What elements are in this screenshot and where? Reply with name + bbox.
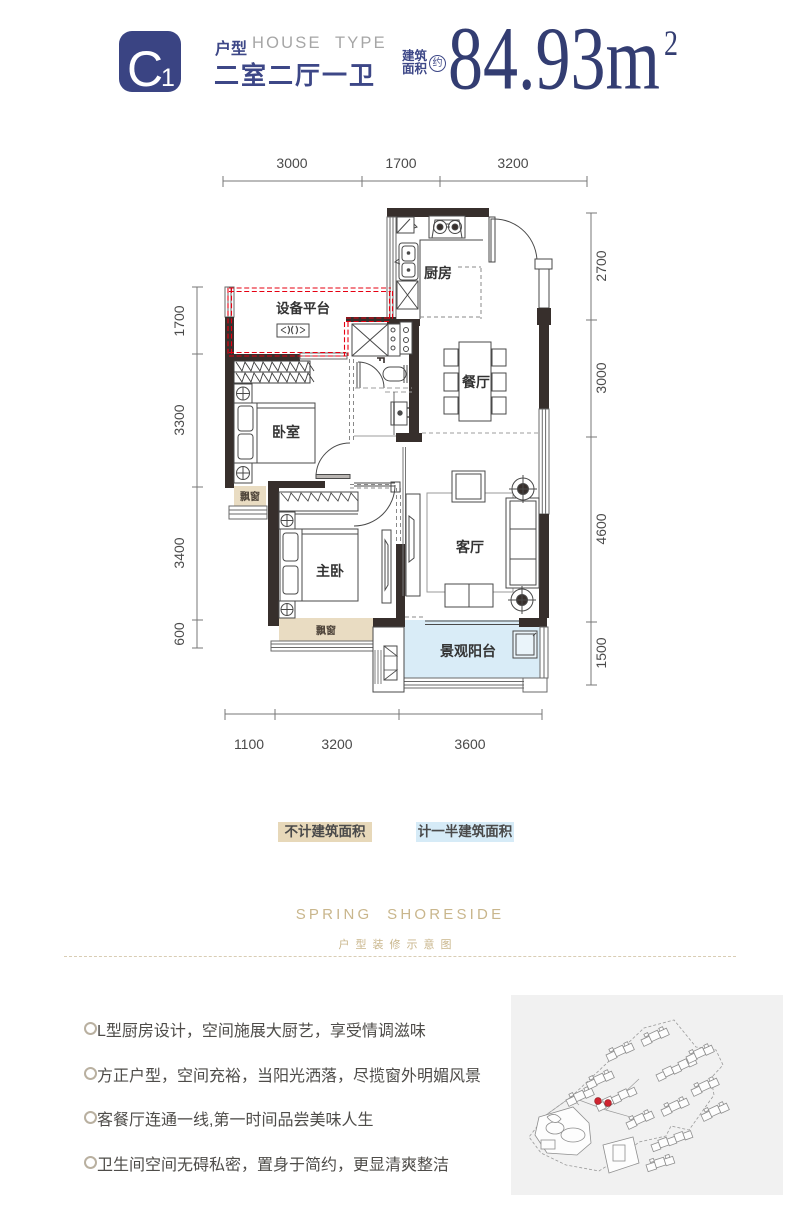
svg-text:3000: 3000 [276,155,307,171]
svg-text:2700: 2700 [593,250,609,281]
svg-text:3000: 3000 [593,362,609,393]
svg-text:餐厅: 餐厅 [461,374,490,390]
svg-text:飘窗: 飘窗 [316,624,336,637]
svg-text:4600: 4600 [593,513,609,544]
svg-text:1700: 1700 [171,305,187,336]
svg-text:3200: 3200 [321,736,352,752]
svg-text:3200: 3200 [497,155,528,171]
svg-text:厨房: 厨房 [424,265,452,281]
svg-text:1500: 1500 [593,637,609,668]
svg-text:1100: 1100 [234,736,264,752]
svg-text:600: 600 [171,622,187,646]
svg-text:景观阳台: 景观阳台 [440,643,496,659]
svg-text:3600: 3600 [454,736,485,752]
svg-text:3300: 3300 [171,404,187,435]
svg-text:1700: 1700 [385,155,416,171]
svg-text:飘窗: 飘窗 [240,490,260,503]
svg-text:卧室: 卧室 [272,424,300,440]
svg-text:客厅: 客厅 [455,539,484,555]
svg-text:主卧: 主卧 [316,563,344,579]
svg-text:3400: 3400 [171,537,187,568]
svg-text:设备平台: 设备平台 [276,300,330,316]
